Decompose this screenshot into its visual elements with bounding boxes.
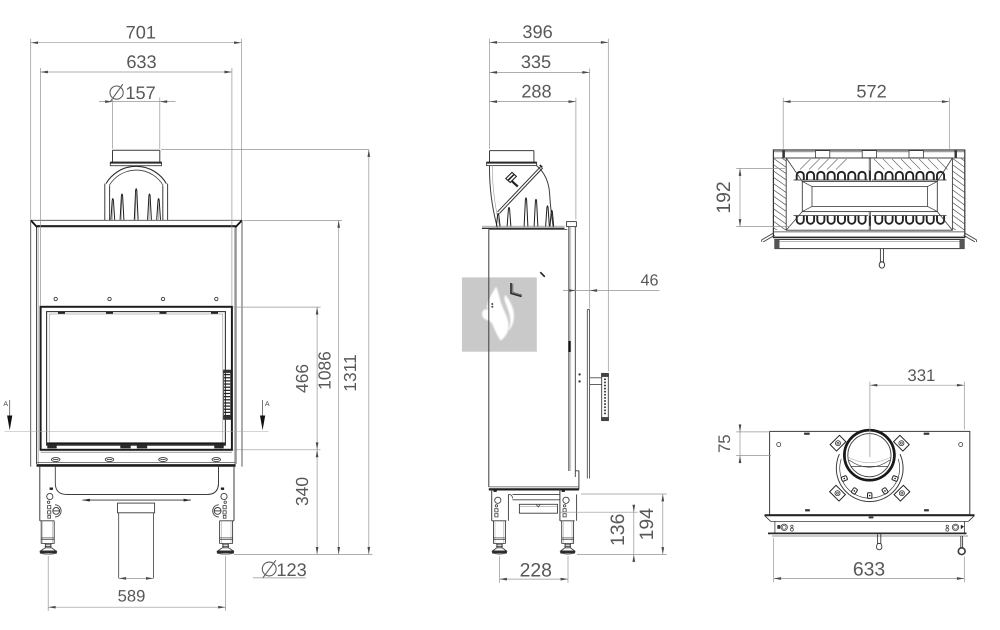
svg-text:46: 46	[640, 271, 658, 289]
svg-text:A: A	[265, 401, 270, 408]
svg-text:466: 466	[292, 364, 312, 393]
svg-text:633: 633	[853, 559, 885, 581]
svg-text:192: 192	[713, 181, 735, 213]
svg-text:589: 589	[118, 586, 146, 605]
svg-text:335: 335	[521, 52, 551, 72]
svg-text:228: 228	[520, 559, 552, 581]
svg-text:1311: 1311	[340, 354, 360, 391]
svg-text:A: A	[3, 401, 8, 408]
svg-text:340: 340	[292, 477, 312, 506]
svg-text:75: 75	[715, 434, 734, 453]
svg-text:157: 157	[125, 83, 155, 103]
svg-text:123: 123	[276, 560, 306, 580]
svg-text:633: 633	[126, 52, 156, 72]
svg-text:1086: 1086	[315, 351, 335, 390]
svg-text:331: 331	[907, 366, 935, 385]
svg-text:396: 396	[522, 22, 552, 42]
svg-text:194: 194	[636, 508, 658, 541]
svg-text:136: 136	[607, 514, 629, 546]
svg-text:288: 288	[521, 81, 551, 101]
svg-text:572: 572	[856, 81, 886, 101]
svg-text:701: 701	[126, 23, 156, 43]
